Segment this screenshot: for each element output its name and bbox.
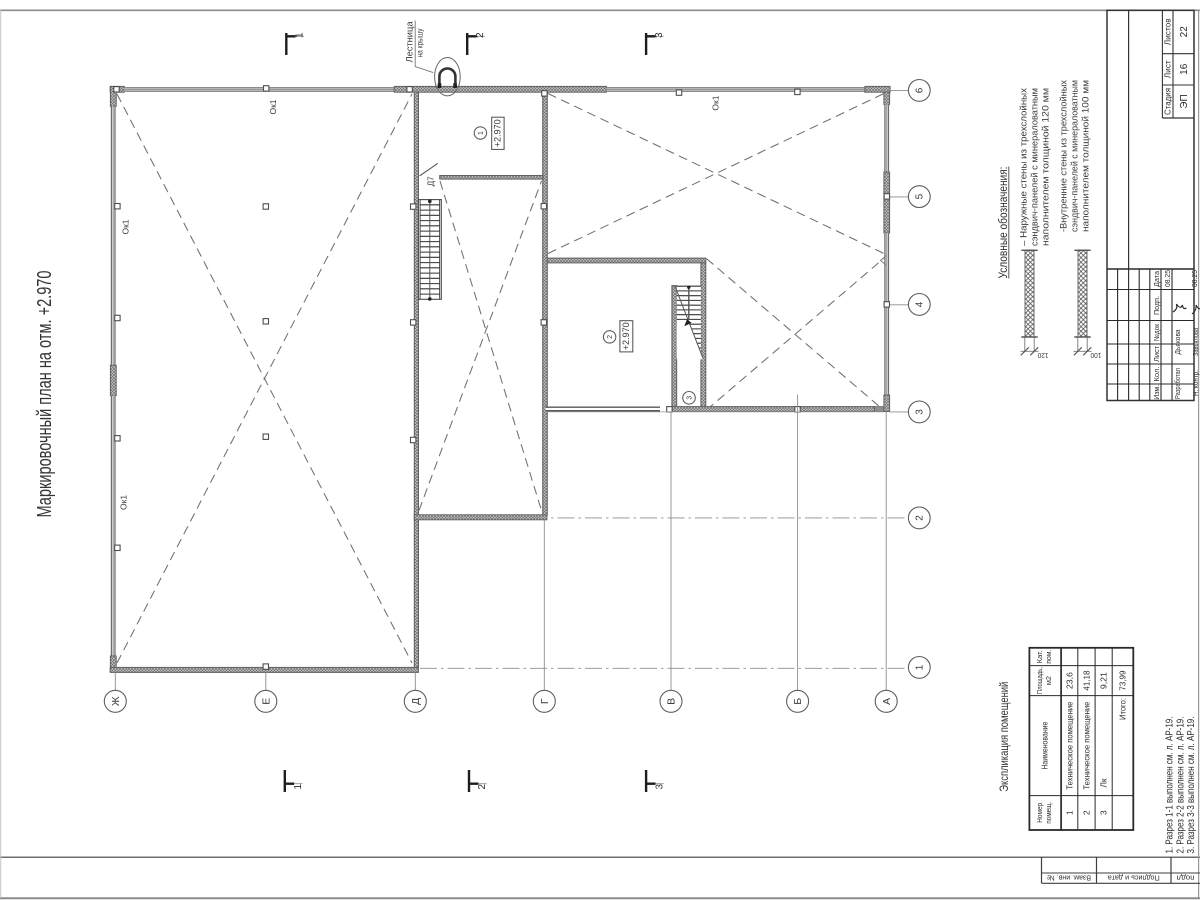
svg-text:100: 100 [1090,351,1101,360]
svg-text:3: 3 [915,409,926,415]
svg-text:наполнителем толщиной 100 мм: наполнителем толщиной 100 мм [1081,80,1092,232]
svg-text:Б: Б [792,698,804,705]
svg-text:3: 3 [654,32,665,38]
svg-text:2: 2 [1082,810,1092,815]
svg-text:Лестница: Лестница [405,21,416,63]
svg-text:Техническое помещение: Техническое помещение [1064,701,1074,789]
svg-text:Ок1: Ок1 [121,219,131,234]
svg-text:м2: м2 [1044,676,1053,685]
svg-text:Взам. инв. №: Взам. инв. № [1047,874,1091,883]
svg-text:2: 2 [477,783,488,789]
svg-text:Итого:: Итого: [1117,698,1127,720]
svg-text:Д7: Д7 [427,176,436,186]
svg-text:3: 3 [654,783,665,789]
svg-text:3: 3 [686,396,693,400]
svg-text:22: 22 [1179,26,1190,38]
svg-text:наполнителем толщиной 120 мм: наполнителем толщиной 120 мм [1041,88,1052,246]
svg-text:Лист: Лист [1164,60,1173,78]
svg-text:Номер: Номер [1035,803,1044,823]
svg-text:А: А [881,698,893,705]
svg-text:2. Разрез 2-2 выполнен см. л.: 2. Разрез 2-2 выполнен см. л. АР-19. [1175,717,1186,854]
svg-text:Площадь,: Площадь, [1035,667,1044,694]
svg-text:2: 2 [915,515,926,521]
svg-text:+2.970: +2.970 [621,322,632,350]
svg-text:Условные обозначения:: Условные обозначения: [998,167,1010,279]
svg-text:Экспликация помещений: Экспликация помещений [999,682,1011,792]
svg-text:120: 120 [1038,351,1049,360]
svg-text:на крышу: на крышу [415,28,424,58]
svg-text:Д: Д [410,698,422,705]
svg-text:Маркировочный план на отм. +2.: Маркировочный план на отм. +2.970 [34,271,56,518]
svg-text:№док: №док [1152,323,1161,341]
svg-text:Е: Е [260,698,272,705]
svg-text:Листов: Листов [1164,18,1173,45]
svg-text:Кат.: Кат. [1035,650,1044,663]
svg-text:3. Разрез 3-3 выполнен см. л.: 3. Разрез 3-3 выполнен см. л. АР-19. [1186,717,1197,854]
svg-text:Ок1: Ок1 [119,495,129,510]
svg-text:23,6: 23,6 [1064,672,1074,689]
svg-text:3: 3 [1099,810,1109,815]
svg-text:+2.970: +2.970 [493,119,504,147]
svg-text:подл: подл [1177,874,1195,883]
svg-text:Дьякова: Дьякова [1173,329,1182,355]
svg-text:9,21: 9,21 [1099,672,1109,689]
svg-text:16: 16 [1179,63,1190,75]
svg-text:Г: Г [539,698,551,704]
svg-text:1: 1 [915,664,926,670]
svg-text:Лк: Лк [1099,778,1109,788]
svg-text:73,99: 73,99 [1117,670,1127,690]
svg-text:Кол.: Кол. [1152,367,1161,382]
svg-text:Ж: Ж [110,696,122,706]
svg-text:Изм.: Изм. [1152,385,1161,400]
svg-text:сэндвич-панелей с минераловатн: сэндвич-панелей с минераловатным [1070,80,1081,232]
svg-text:Дата: Дата [1152,270,1161,287]
svg-text:Ок1: Ок1 [711,95,721,110]
svg-text:Лист: Лист [1152,345,1161,362]
svg-text:2: 2 [607,335,614,339]
svg-text:1: 1 [478,131,485,135]
svg-text:В: В [666,698,678,705]
svg-text:Стадия: Стадия [1164,88,1173,115]
svg-text:Подпись и дата: Подпись и дата [1107,874,1160,883]
svg-text:Наименование: Наименование [1040,721,1050,769]
svg-text:5: 5 [915,193,926,199]
svg-text:1: 1 [294,32,305,38]
svg-text:Завьялова: Завьялова [1191,327,1200,356]
svg-text:1: 1 [293,783,304,789]
svg-text:2: 2 [475,32,486,38]
svg-text:08.25: 08.25 [1190,270,1199,287]
svg-text:08.25: 08.25 [1163,270,1172,287]
svg-text:6: 6 [915,87,926,93]
svg-text:Подп.: Подп. [1152,296,1161,315]
svg-text:помещ.: помещ. [1044,802,1053,824]
svg-text:Разработал: Разработал [1173,368,1182,399]
svg-text:сэндвич-панелей с минераловатн: сэндвич-панелей с минераловатным [1030,88,1041,246]
svg-text:4: 4 [915,301,926,307]
svg-text:Техническое помещение: Техническое помещение [1082,701,1092,789]
svg-text:-Внутренние стены из трехслойн: -Внутренние стены из трехслойных [1059,80,1070,232]
svg-text:пом.: пом. [1044,650,1053,664]
svg-text:1: 1 [1064,810,1074,815]
svg-text:ЭП: ЭП [1179,94,1190,108]
svg-text:41,18: 41,18 [1082,670,1092,690]
svg-text:Ок1: Ок1 [268,99,278,114]
svg-text:Н. контр.: Н. контр. [1191,370,1200,396]
svg-text:– Наружные стены из трехслойны: – Наружные стены из трехслойных [1019,88,1030,246]
svg-text:1. Разрез 1-1 выполнен см. л.: 1. Разрез 1-1 выполнен см. л. АР-19. [1165,717,1176,854]
